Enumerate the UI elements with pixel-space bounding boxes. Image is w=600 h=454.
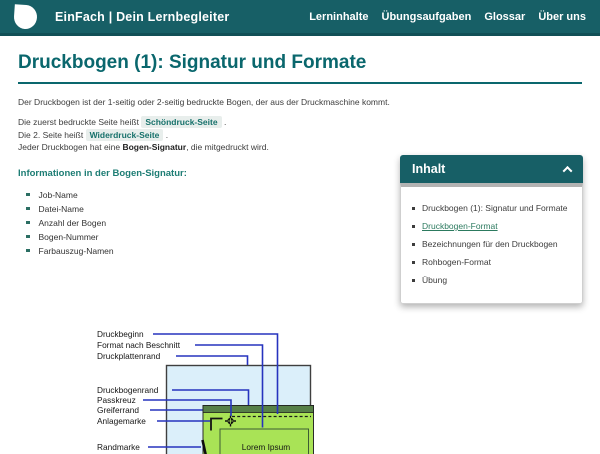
chevron-up-icon[interactable] <box>563 165 573 175</box>
druckbogen-diagram: Lorem Ipsum Druckbeginn Format nach Besc… <box>80 318 320 454</box>
label-passkreuz: Passkreuz <box>97 395 136 405</box>
label-druckbeginn: Druckbeginn <box>97 329 144 339</box>
lorem-ipsum-placeholder: Lorem Ipsum <box>242 442 291 452</box>
main-nav: Lerninhalte Übungsaufgaben Glossar Über … <box>309 11 586 23</box>
intro-paragraph: Der Druckbogen ist der 1-seitig oder 2-s… <box>18 97 398 107</box>
term-bogen-signatur: Bogen-Signatur <box>122 142 186 152</box>
line-schoendruck: Die zuerst bedruckte Seite heißt Schöndr… <box>18 116 408 129</box>
term-schoendruck-seite: Schöndruck-Seite <box>141 116 221 128</box>
line-signatur: Jeder Druckbogen hat eine Bogen-Signatur… <box>18 141 408 154</box>
main-content: Druckbogen (1): Signatur und Formate Der… <box>0 52 600 258</box>
list-item-label: Anzahl der Bogen <box>39 218 107 228</box>
nav-item-lerninhalte[interactable]: Lerninhalte <box>309 11 368 23</box>
bullet-icon <box>26 207 30 211</box>
line-schoendruck-pre: Die zuerst bedruckte Seite heißt <box>18 117 141 127</box>
toc-list: Druckbogen (1): Signatur und Formate Dru… <box>400 183 583 304</box>
label-randmarke: Randmarke <box>97 442 140 452</box>
brand-title[interactable]: EinFach | Dein Lernbegleiter <box>55 10 229 24</box>
line-widerdruck: Die 2. Seite heißt Widerdruck-Seite . <box>18 129 408 142</box>
bullet-icon <box>412 225 415 228</box>
toc-header[interactable]: Inhalt <box>400 155 583 183</box>
nav-item-uebungsaufgaben[interactable]: Übungsaufgaben <box>382 11 472 23</box>
list-item-label: Farbauszug-Namen <box>39 246 114 256</box>
bullet-icon <box>26 235 30 239</box>
toc-item-label: Bezeichnungen für den Druckbogen <box>422 239 558 249</box>
line-schoendruck-post: . <box>222 117 227 127</box>
app-header: EinFach | Dein Lernbegleiter Lerninhalte… <box>0 0 600 36</box>
label-format-nach-beschnitt: Format nach Beschnitt <box>97 340 181 350</box>
toc-item-link[interactable]: Druckbogen-Format <box>422 221 498 231</box>
list-item-label: Bogen-Nummer <box>39 232 99 242</box>
label-druckplattenrand: Druckplattenrand <box>97 351 161 361</box>
bullet-icon <box>26 249 30 253</box>
line-signatur-pre: Jeder Druckbogen hat eine <box>18 142 122 152</box>
label-anlagemarke: Anlagemarke <box>97 416 146 426</box>
toc-item-rohbogen-format: Rohbogen-Format <box>412 257 571 267</box>
toc-item-label: Rohbogen-Format <box>422 257 491 267</box>
toc-item-label: Druckbogen (1): Signatur und Formate <box>422 203 568 213</box>
brand-logo-icon[interactable] <box>13 4 38 30</box>
toc-title: Inhalt <box>412 162 445 176</box>
bullet-icon <box>26 193 30 197</box>
toc-item-uebung: Übung <box>412 275 571 285</box>
bullet-icon <box>412 207 415 210</box>
line-widerdruck-pre: Die 2. Seite heißt <box>18 130 86 140</box>
toc-item-label: Übung <box>422 275 447 285</box>
label-druckbogenrand: Druckbogenrand <box>97 385 159 395</box>
bullet-icon <box>412 279 415 282</box>
list-item-label: Job-Name <box>39 190 78 200</box>
title-divider <box>18 82 582 84</box>
nav-item-glossar[interactable]: Glossar <box>484 11 525 23</box>
bullet-icon <box>26 221 30 225</box>
definition-lines: Die zuerst bedruckte Seite heißt Schöndr… <box>18 116 408 154</box>
line-widerdruck-post: . <box>163 130 168 140</box>
label-greiferrand: Greiferrand <box>97 405 139 415</box>
bullet-icon <box>412 261 415 264</box>
toc-panel: Inhalt Druckbogen (1): Signatur und Form… <box>400 155 583 304</box>
list-item-label: Datei-Name <box>39 204 84 214</box>
nav-item-ueber-uns[interactable]: Über uns <box>538 11 586 23</box>
toc-item-current: Druckbogen (1): Signatur und Formate <box>412 203 571 213</box>
term-widerdruck-seite: Widerdruck-Seite <box>86 129 164 141</box>
page-title: Druckbogen (1): Signatur und Formate <box>18 52 582 74</box>
bullet-icon <box>412 243 415 246</box>
line-signatur-post: , die mitgedruckt wird. <box>186 142 269 152</box>
toc-item-bezeichnungen: Bezeichnungen für den Druckbogen <box>412 239 571 249</box>
toc-item-druckbogen-format[interactable]: Druckbogen-Format <box>412 221 571 231</box>
greiferrand-strip <box>203 406 314 413</box>
